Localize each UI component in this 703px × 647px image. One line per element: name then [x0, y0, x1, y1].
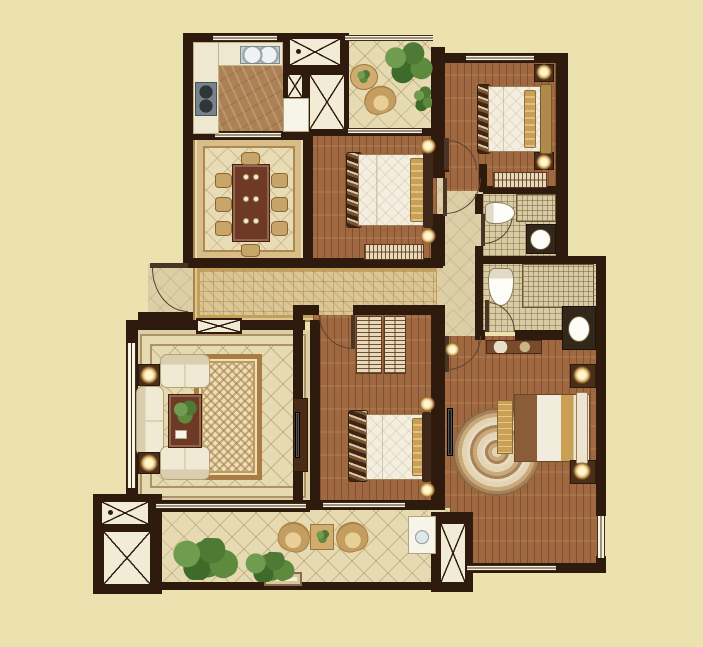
- bedroom3-lamp-b: [536, 154, 552, 170]
- bedroom2-lamp-b: [420, 228, 436, 244]
- bedroom4-headboard: [422, 412, 431, 482]
- bedroom3-pillows: [524, 90, 536, 148]
- dining-chair-right-1: [271, 173, 288, 188]
- balcony-table-plant: [315, 529, 330, 544]
- dining-plate-2: [253, 174, 259, 180]
- dining-chair-right-2: [271, 197, 288, 212]
- bathroom2-basin: [568, 316, 590, 342]
- bedroom3-lamp-a: [536, 64, 552, 80]
- bedroom4-balcony-window: [323, 502, 405, 508]
- bedroom4-lamp-b: [419, 482, 435, 498]
- wall-bath1-west-a: [475, 194, 483, 214]
- master-bottom-window: [456, 565, 556, 571]
- floor-plan-page: [0, 0, 703, 647]
- wall-living-east: [310, 320, 320, 502]
- wall-bath1-right: [556, 194, 568, 256]
- master-lamp-a: [573, 366, 591, 384]
- living-room-window: [127, 343, 136, 488]
- dining-table: [232, 164, 270, 242]
- master-bench: [497, 400, 513, 454]
- coffee-table-tray: [175, 430, 187, 439]
- refrigerator: [283, 98, 309, 132]
- shaft-top-box: [286, 73, 304, 99]
- dining-chair-foot: [241, 244, 260, 257]
- sofa-long: [136, 386, 164, 456]
- dining-chair-head: [241, 152, 260, 165]
- master-headboard: [576, 392, 588, 464]
- master-corner-lamp: [445, 342, 460, 357]
- living-balcony-window: [156, 503, 306, 509]
- wall-master-right-a: [596, 338, 606, 516]
- wall-bath-divider: [475, 256, 606, 264]
- sofa-top: [160, 354, 210, 388]
- bedroom2-headboard: [423, 152, 433, 228]
- dining-plate-6: [253, 218, 259, 224]
- stairs-bottom-left-box: [100, 500, 150, 526]
- balcony-bottom-greenery-b: [240, 552, 296, 582]
- wall-bedroom4-top-b: [353, 305, 443, 315]
- bedroom4-foot-rug: [348, 410, 368, 482]
- dining-chair-left-3: [215, 221, 232, 236]
- wall-bath2-right: [596, 256, 606, 340]
- bedroom2-lamp-a: [420, 138, 436, 154]
- shaft-bottom-right-box: [439, 522, 467, 584]
- dining-chair-left-1: [215, 173, 232, 188]
- bedroom3-wardrobe: [493, 172, 547, 188]
- dining-plate-5: [243, 218, 249, 224]
- bedroom2-pillows: [410, 158, 424, 222]
- wall-dining-east: [303, 134, 313, 266]
- bathroom1-shower: [516, 194, 556, 222]
- stairs-top-box: [288, 37, 342, 67]
- elevator-top-box: [308, 73, 346, 131]
- bedroom4-wardrobe-a: [356, 316, 382, 374]
- master-dresser: [486, 340, 542, 354]
- balcony-top-greenery-b: [414, 84, 432, 114]
- wall-west-upper: [183, 33, 193, 268]
- dining-plate-1: [243, 174, 249, 180]
- tv-master: [447, 408, 453, 456]
- bathroom2-shower: [522, 264, 594, 308]
- wall-dining-hall-beam: [183, 258, 310, 268]
- wall-balcony-parapet: [158, 582, 452, 590]
- shoe-cabinet: [196, 318, 242, 334]
- master-side-window: [597, 516, 605, 558]
- dining-plate-3: [243, 196, 249, 202]
- kitchen-pass-window: [215, 132, 281, 138]
- balcony-top-plant: [356, 69, 371, 84]
- bedroom2-balcony-window: [348, 128, 422, 134]
- washing-machine: [408, 516, 436, 554]
- bedroom3-window: [466, 55, 534, 61]
- balcony-top-greenery-a: [381, 41, 433, 85]
- dining-plate-4: [253, 196, 259, 202]
- balcony-top-rail-window: [345, 35, 433, 41]
- tv-living: [295, 412, 300, 458]
- balcony-bottom-greenery-a: [166, 538, 240, 580]
- wall-bedroom3-right: [556, 53, 568, 194]
- kitchen-sink: [240, 46, 280, 64]
- bedroom4-wardrobe-b: [384, 316, 406, 374]
- bedroom2-wardrobe: [364, 244, 424, 260]
- kitchen-window: [213, 35, 277, 41]
- stove: [195, 82, 217, 116]
- bathroom1-basin: [530, 229, 551, 250]
- master-lamp-b: [573, 462, 591, 480]
- elevator-bottom-left-box: [102, 530, 152, 586]
- dining-chair-left-2: [215, 197, 232, 212]
- floor-plan: [0, 0, 703, 647]
- dining-chair-right-3: [271, 221, 288, 236]
- bedroom3-headboard: [540, 84, 552, 154]
- wall-entry-jog: [138, 312, 188, 322]
- side-lamp-a: [140, 366, 158, 384]
- sofa-bottom: [160, 446, 210, 480]
- bedroom4-lamp-a: [419, 396, 435, 412]
- coffee-table-plant: [171, 399, 199, 425]
- side-lamp-b: [140, 454, 158, 472]
